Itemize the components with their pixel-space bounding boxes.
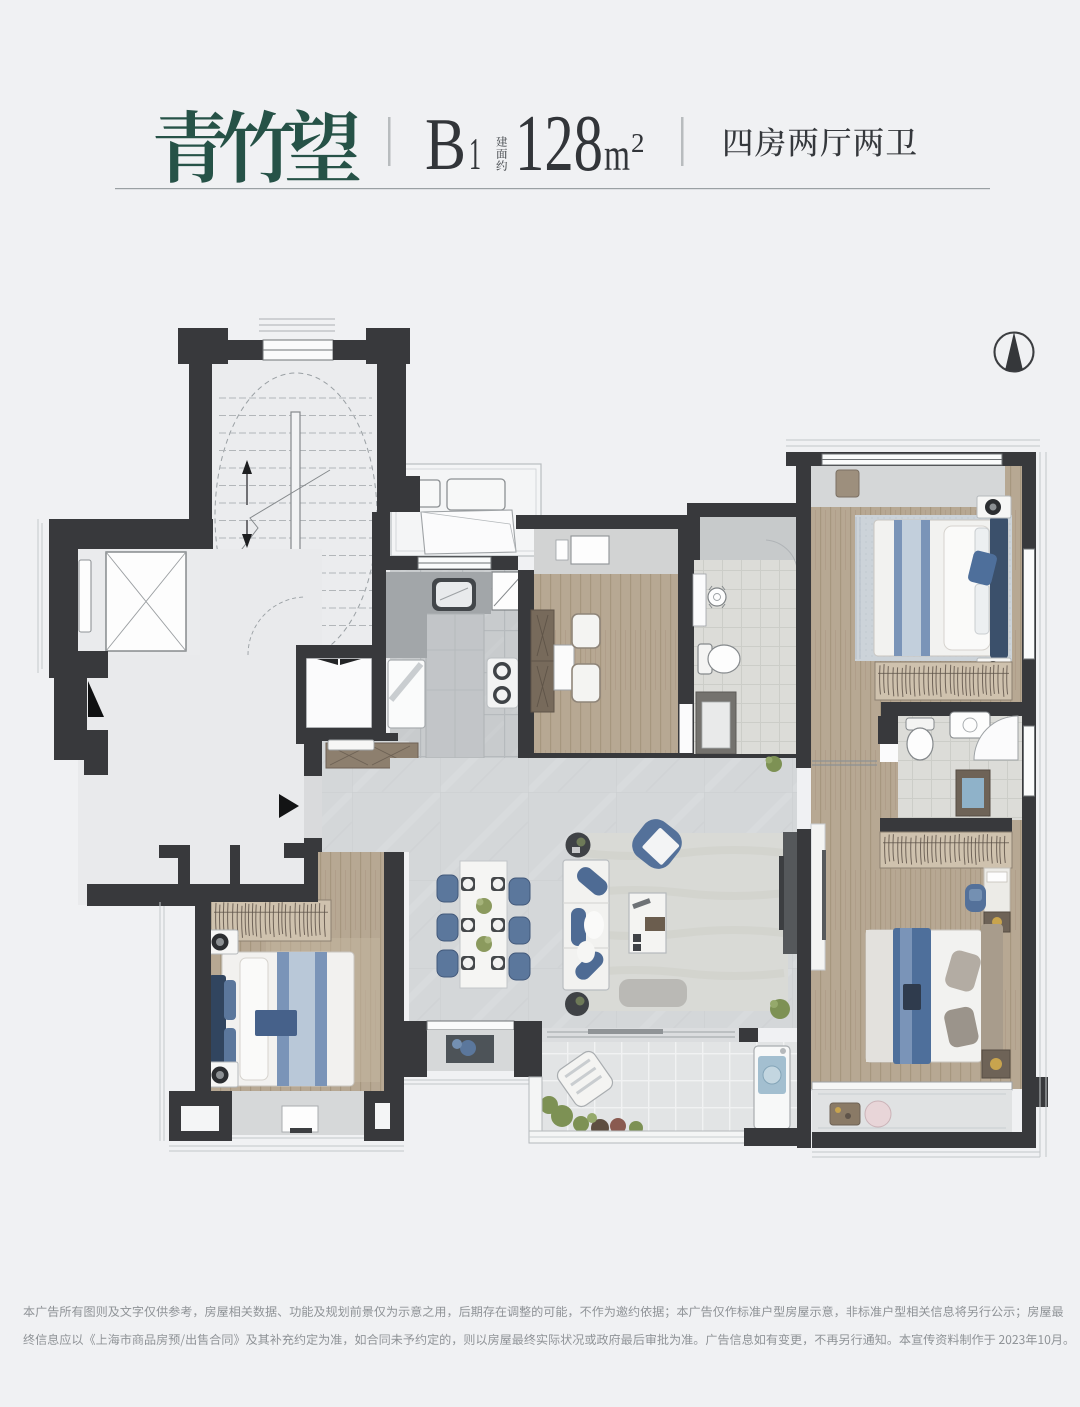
svg-text:2: 2: [631, 128, 645, 158]
svg-text:B: B: [425, 104, 466, 186]
svg-text:128: 128: [515, 100, 603, 188]
svg-text:1: 1: [469, 129, 481, 179]
svg-text:m: m: [604, 129, 630, 180]
